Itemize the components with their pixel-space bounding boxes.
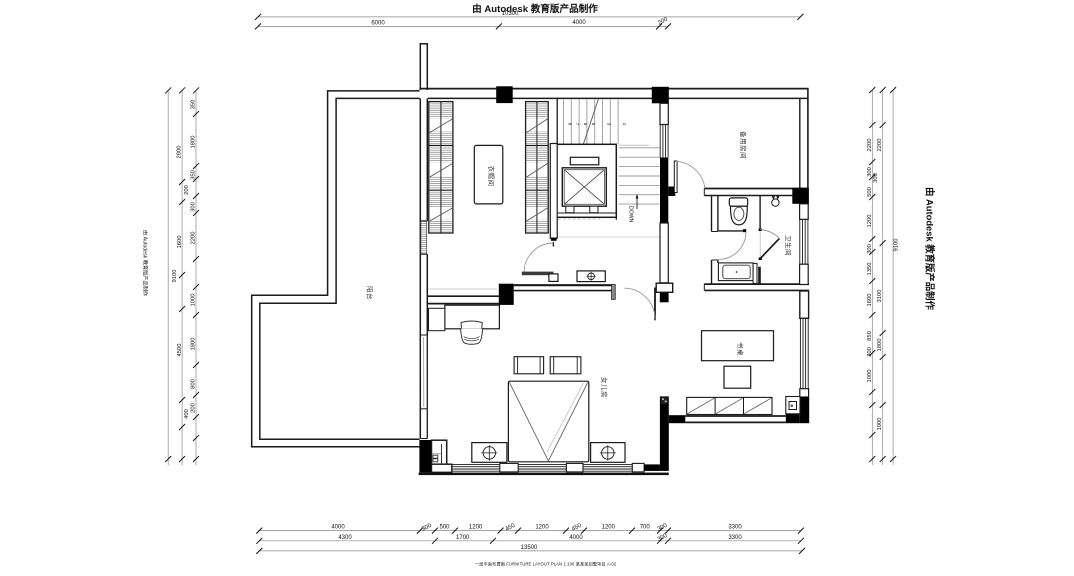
svg-text:1800: 1800: [191, 136, 197, 149]
svg-text:备用房间: 备用房间: [739, 131, 748, 159]
svg-text:4500: 4500: [177, 344, 183, 357]
svg-text:300: 300: [191, 202, 197, 212]
svg-text:6: 6: [583, 123, 588, 126]
svg-text:700: 700: [640, 525, 651, 531]
svg-text:1000: 1000: [867, 370, 873, 383]
svg-text:3100: 3100: [877, 290, 883, 303]
svg-text:由 Autodesk 教育版产品制作: 由 Autodesk 教育版产品制作: [142, 230, 150, 296]
svg-text:13500: 13500: [521, 545, 538, 551]
svg-text:500: 500: [867, 187, 873, 197]
svg-text:300: 300: [867, 244, 873, 254]
svg-text:4000: 4000: [572, 20, 586, 26]
svg-text:300: 300: [873, 173, 879, 183]
svg-text:1200: 1200: [867, 215, 873, 228]
svg-text:450: 450: [505, 523, 517, 533]
svg-text:1800: 1800: [877, 339, 883, 352]
svg-text:2800: 2800: [177, 146, 183, 159]
svg-text:300: 300: [867, 167, 873, 177]
svg-text:1700: 1700: [456, 535, 470, 541]
svg-text:350: 350: [191, 100, 197, 110]
svg-text:2200: 2200: [191, 232, 197, 245]
svg-text:200: 200: [184, 185, 190, 195]
svg-text:400: 400: [184, 409, 190, 419]
svg-text:书桌: 书桌: [736, 342, 745, 356]
svg-text:5: 5: [591, 123, 596, 126]
svg-text:1000: 1000: [877, 418, 883, 431]
svg-text:3300: 3300: [728, 535, 742, 541]
svg-text:3300: 3300: [728, 525, 742, 531]
svg-text:2200: 2200: [877, 139, 883, 152]
svg-text:450: 450: [571, 523, 583, 533]
svg-text:200: 200: [191, 403, 197, 413]
svg-text:7: 7: [575, 123, 580, 126]
svg-text:9100: 9100: [894, 239, 900, 252]
svg-text:8: 8: [567, 123, 572, 126]
svg-text:4000: 4000: [569, 535, 583, 541]
svg-text:2200: 2200: [867, 139, 873, 152]
svg-text:女儿房: 女儿房: [600, 377, 609, 398]
svg-text:1000: 1000: [191, 294, 197, 307]
svg-text:300: 300: [421, 523, 433, 533]
svg-text:由 Autodesk 教育版产品制作: 由 Autodesk 教育版产品制作: [472, 3, 598, 15]
svg-text:1600: 1600: [867, 294, 873, 307]
svg-text:1200: 1200: [535, 525, 549, 531]
svg-text:300: 300: [867, 347, 873, 357]
svg-text:10300: 10300: [502, 11, 519, 17]
svg-text:DOWN: DOWN: [628, 206, 634, 223]
svg-text:一层平面布置图 FURNITURE LAYOUT PLAN: 一层平面布置图 FURNITURE LAYOUT PLAN 1:100 某某某别…: [475, 561, 617, 568]
svg-text:350: 350: [191, 170, 197, 180]
svg-text:800: 800: [191, 379, 197, 389]
svg-text:500: 500: [439, 525, 450, 531]
svg-text:由 Autodesk 教育版产品制作: 由 Autodesk 教育版产品制作: [925, 187, 936, 311]
svg-text:4000: 4000: [331, 525, 345, 531]
svg-text:1: 1: [622, 123, 627, 126]
svg-text:200: 200: [657, 16, 669, 26]
svg-text:9100: 9100: [172, 270, 178, 283]
svg-text:1200: 1200: [602, 525, 616, 531]
svg-text:1600: 1600: [177, 236, 183, 249]
svg-text:6000: 6000: [371, 20, 385, 26]
svg-text:4300: 4300: [338, 535, 352, 541]
svg-text:衣帽间: 衣帽间: [487, 166, 496, 187]
svg-text:3: 3: [606, 123, 611, 126]
svg-text:阳台: 阳台: [366, 286, 375, 300]
svg-text:850: 850: [867, 331, 873, 341]
svg-text:1200: 1200: [469, 525, 483, 531]
svg-text:卫生间: 卫生间: [784, 235, 793, 256]
svg-text:1800: 1800: [191, 338, 197, 351]
svg-text:1350: 1350: [867, 263, 873, 276]
